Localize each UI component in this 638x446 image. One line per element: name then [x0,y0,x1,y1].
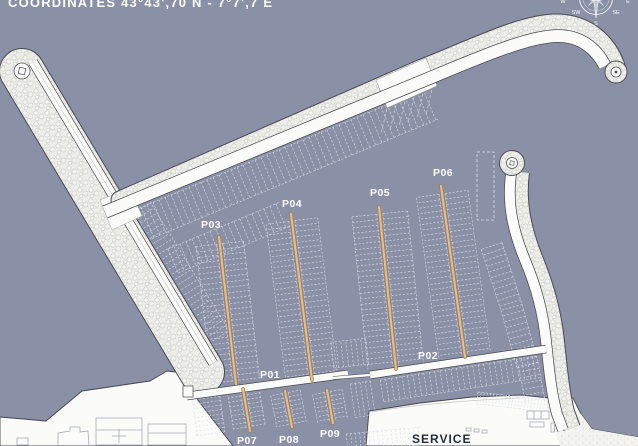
compass-e-label: E [626,0,630,5]
pier-label-p06: P06 [433,167,453,179]
north-head-light [615,71,618,74]
marina-plan: P01 P02 P03 P04 P05 P06 P07 P08 P09 SERV… [0,0,638,446]
pier-label-p04: P04 [282,198,302,210]
compass-s-label: S [594,21,598,27]
coordinates-title: COORDINATES 43°43',70 N - 7°7',7 E [8,0,273,10]
pier-label-p01: P01 [260,369,280,381]
pier-label-p08: P08 [279,434,299,446]
compass-w-label: W [560,0,566,5]
dock-p01-cap [183,386,193,397]
pier-label-p02: P02 [418,350,438,362]
compass-se-label: SE [612,10,620,16]
pier-label-p07: P07 [237,435,257,446]
pier-label-p03: P03 [201,219,221,231]
west-head-lighthouse-ring [14,63,30,79]
marina-plan-svg: P01 P02 P03 P04 P05 P06 P07 P08 P09 SERV… [0,0,638,446]
pier-label-p05: P05 [370,187,390,199]
east-head-light [510,161,515,166]
compass-sw-label: SW [572,10,582,16]
service-area-label: SERVICE [412,432,471,446]
pier-label-p09: P09 [320,428,340,440]
